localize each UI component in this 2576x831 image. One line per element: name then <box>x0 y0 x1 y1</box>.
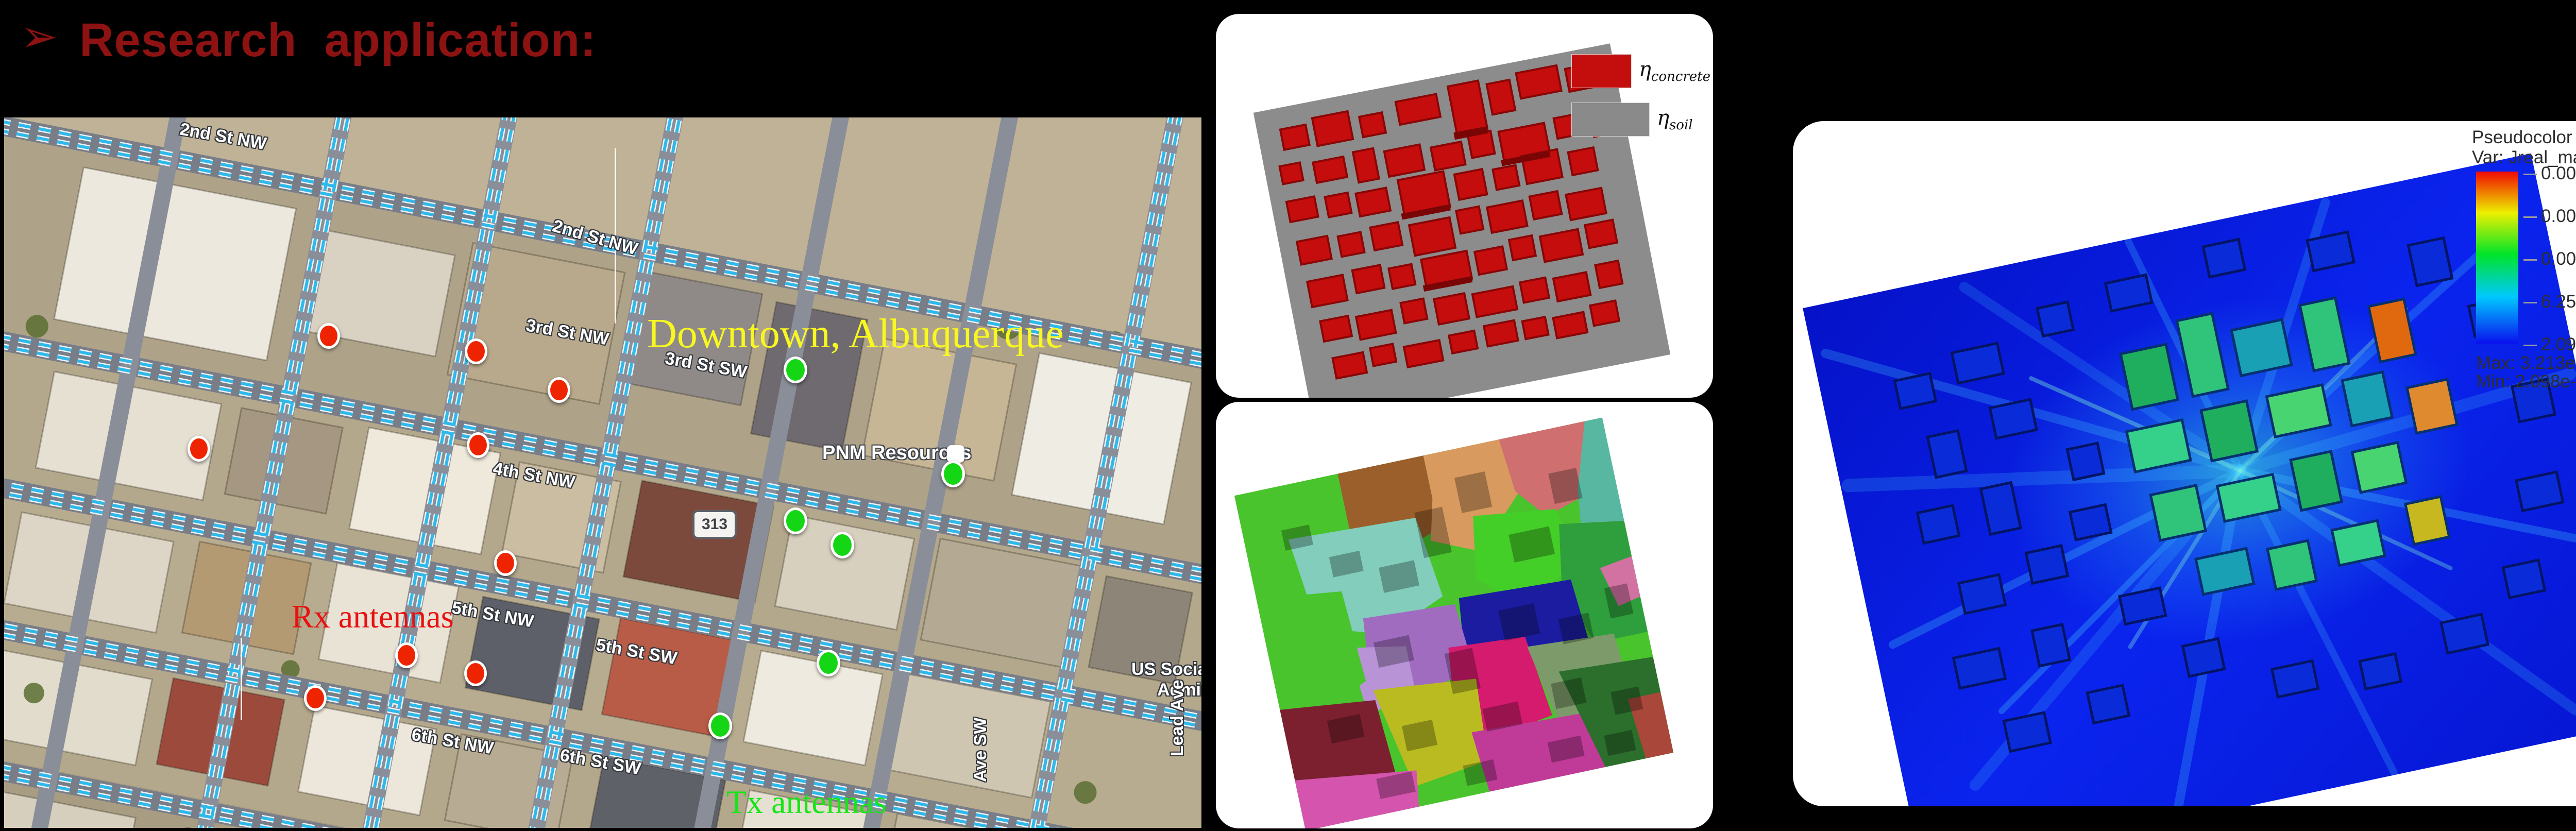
partition-regions <box>1234 417 1673 828</box>
soil-swatch <box>1571 103 1650 137</box>
tx-antenna-marker <box>831 532 854 558</box>
field-simulation-card: Pseudocolor Var: Jreal_mag 0.0002500 0.0… <box>1793 121 2576 806</box>
rx-antenna-marker <box>467 432 489 458</box>
route-shield-313: 313 <box>692 510 737 539</box>
colorbar-gradient <box>2476 172 2518 344</box>
colorbar: Pseudocolor Var: Jreal_mag 0.0002500 0.0… <box>2472 127 2576 167</box>
colorbar-tick: 0.0002500 <box>2523 163 2576 184</box>
rx-antenna-marker <box>304 685 327 711</box>
tx-antenna-marker <box>941 461 965 487</box>
materials-legend: ηconcrete ηsoil <box>1571 54 1710 151</box>
colorbar-tick: 0.0001250 <box>2523 249 2576 269</box>
colorbar-max: Max: 3.213e-05 <box>2476 353 2576 374</box>
rx-antenna-marker <box>464 660 487 686</box>
colorbar-title: Pseudocolor <box>2472 127 2576 147</box>
legend-item-concrete: ηconcrete <box>1571 54 1710 88</box>
slide-title: Research application: <box>79 14 597 66</box>
tx-antenna-marker <box>784 507 807 534</box>
rx-antenna-marker <box>317 323 340 349</box>
rx-antenna-marker <box>188 436 210 462</box>
street-label-lead-ave: Lead Ave <box>1167 680 1188 756</box>
arrow-bullet-icon: ➢ <box>21 14 58 59</box>
tx-antenna-marker <box>817 650 840 676</box>
concrete-swatch <box>1571 54 1632 88</box>
tx-antennas-annotation: Tx antennas <box>726 783 887 821</box>
colorbar-tick: 2.098e-09 <box>2523 334 2576 355</box>
slide-header: ➢ Research application: <box>21 14 597 66</box>
satellite-map-panel[interactable]: 2nd St NW 2nd St NW 3rd St NW 3rd St SW … <box>4 117 1201 828</box>
legend-item-soil: ηsoil <box>1571 103 1710 137</box>
tx-antenna-marker <box>784 357 807 383</box>
partition-model-card <box>1216 402 1713 828</box>
rx-antenna-marker <box>494 550 517 576</box>
poi-label-us-social-1: US Social <box>1131 659 1201 680</box>
rx-antennas-annotation: Rx antennas <box>292 598 454 636</box>
colorbar-tick: 0.0001875 <box>2523 206 2576 227</box>
city-blocks <box>4 117 1201 828</box>
rx-antenna-marker <box>548 377 570 403</box>
colorbar-min: Min: 2.098e-09 <box>2476 371 2576 392</box>
materials-model-card: ηconcrete ηsoil <box>1216 14 1713 398</box>
street-label-ave-sw: Ave SW <box>971 718 991 782</box>
label-stem <box>241 638 242 720</box>
partition-model-art <box>1216 402 1713 828</box>
tx-antenna-marker <box>708 713 732 739</box>
colorbar-tick: 6.250e-05 <box>2523 292 2576 312</box>
city-annotation: Downtown, Albuquerque <box>647 311 1064 358</box>
rx-antenna-marker <box>395 642 418 668</box>
rx-antenna-marker <box>465 338 487 364</box>
poi-marker-icon <box>947 445 964 463</box>
satellite-map-art <box>4 117 1201 828</box>
field-simulation-art <box>1793 121 2576 806</box>
